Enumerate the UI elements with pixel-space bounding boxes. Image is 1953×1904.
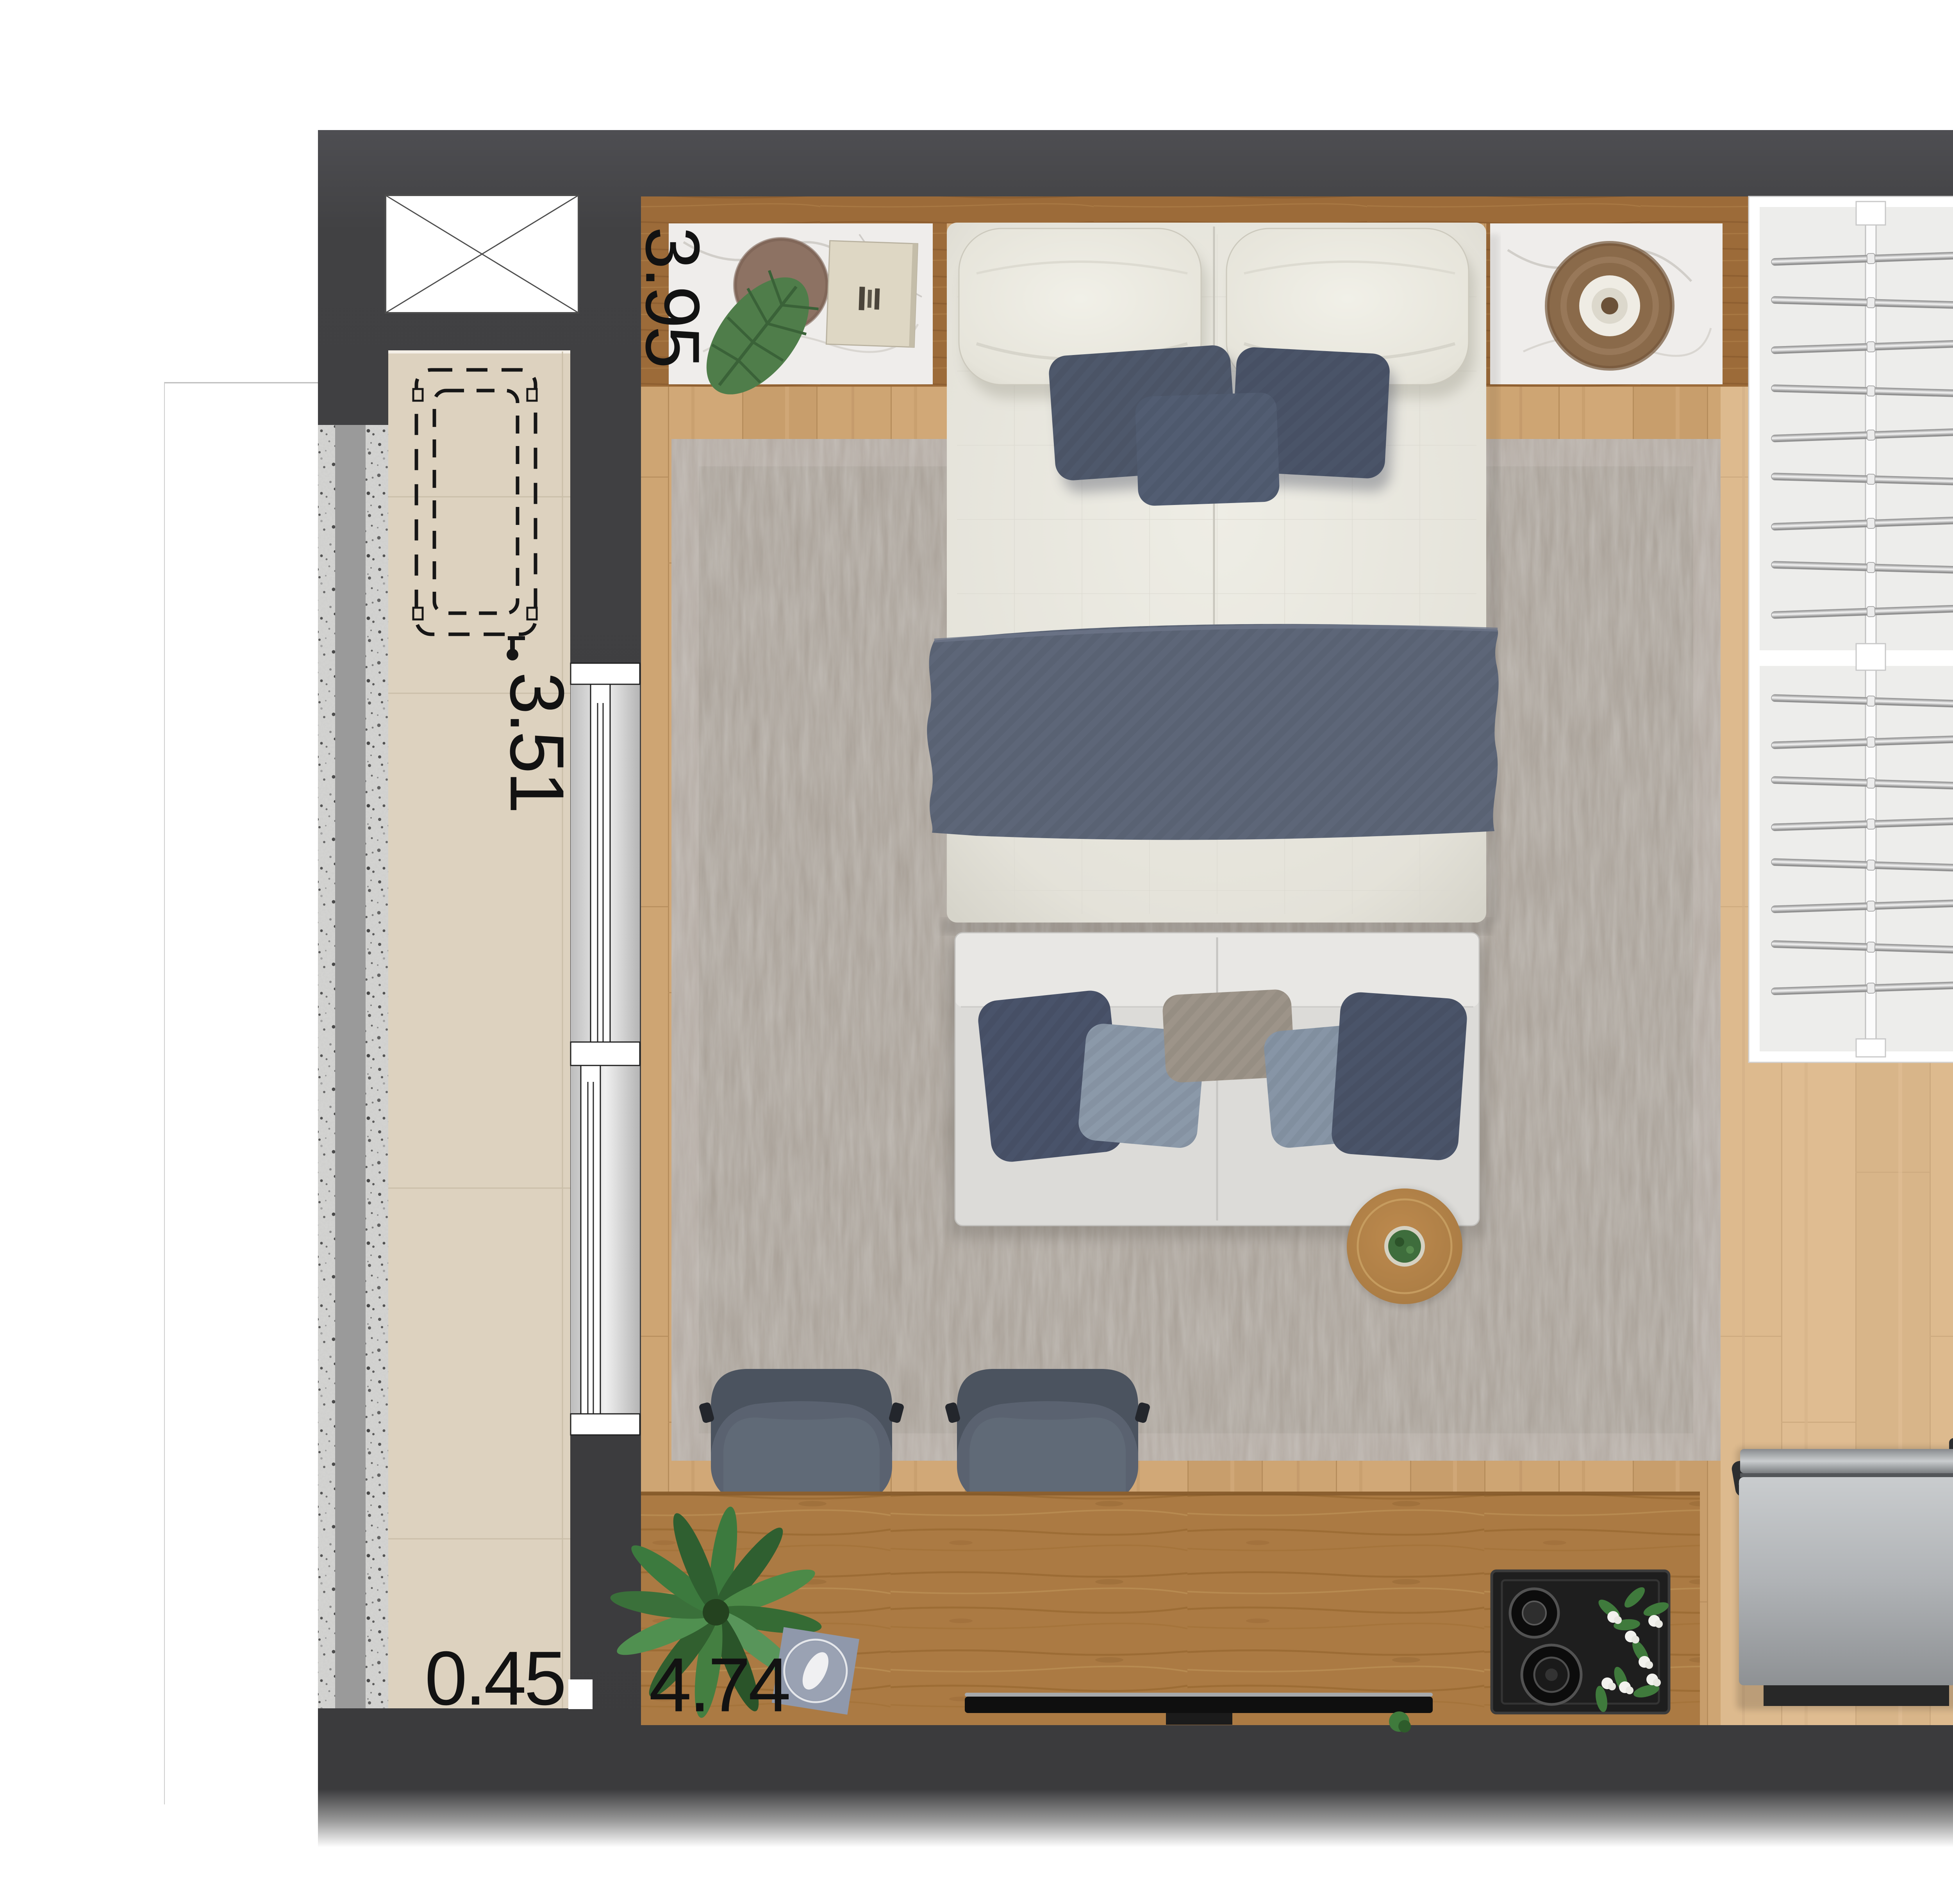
- svg-text:0.45: 0.45: [425, 1636, 564, 1721]
- svg-text:3.51: 3.51: [494, 672, 580, 811]
- svg-text:3.95: 3.95: [630, 227, 716, 366]
- svg-text:4.74: 4.74: [649, 1642, 789, 1728]
